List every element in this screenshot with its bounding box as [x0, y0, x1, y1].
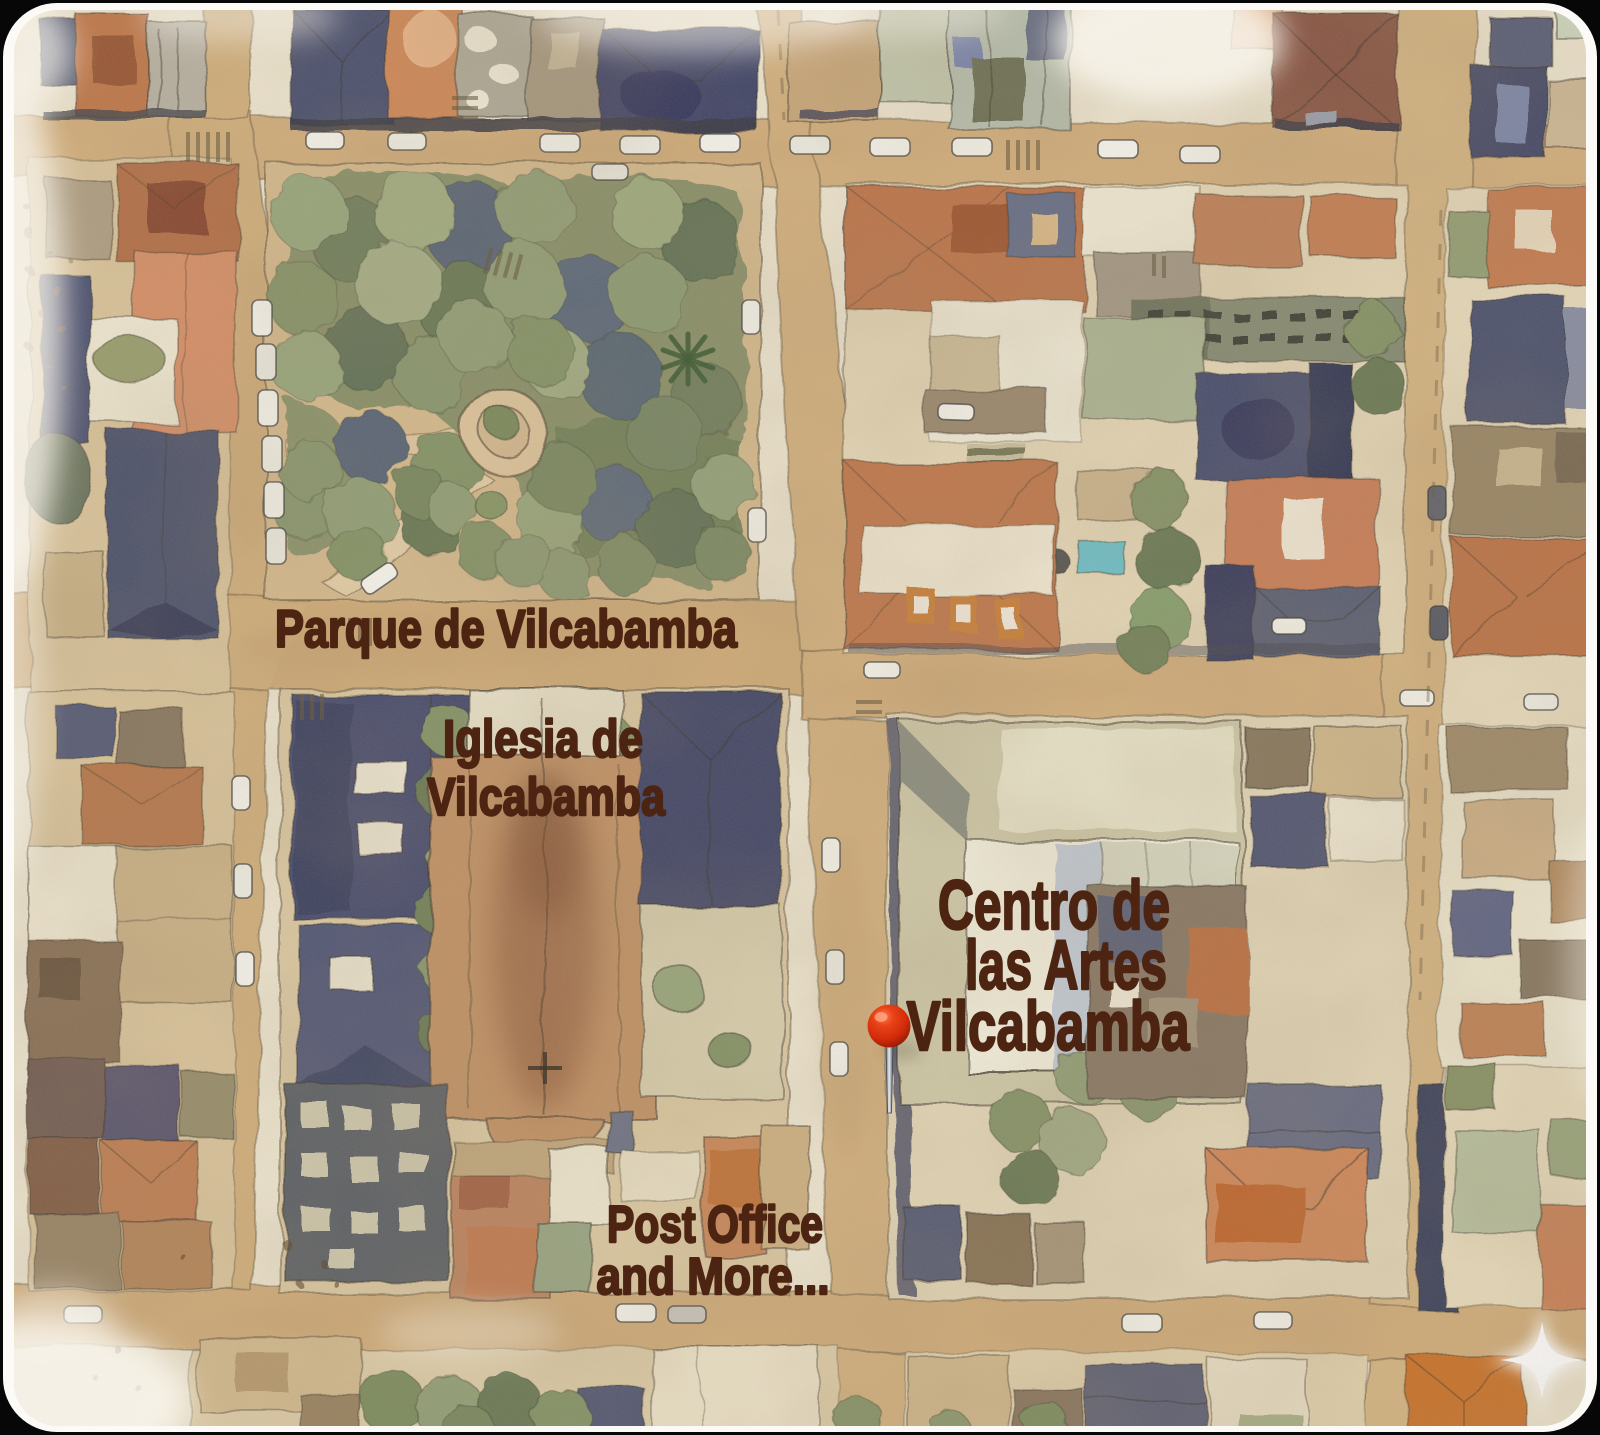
svg-text:Iglesia de: Iglesia de: [443, 710, 643, 769]
svg-text:Vilcabamba: Vilcabamba: [907, 987, 1191, 1065]
svg-text:and More...: and More...: [597, 1248, 830, 1306]
svg-text:Post Office: Post Office: [607, 1196, 823, 1254]
svg-text:Vilcabamba: Vilcabamba: [427, 768, 665, 827]
svg-text:Parque de Vilcabamba: Parque de Vilcabamba: [275, 600, 737, 659]
